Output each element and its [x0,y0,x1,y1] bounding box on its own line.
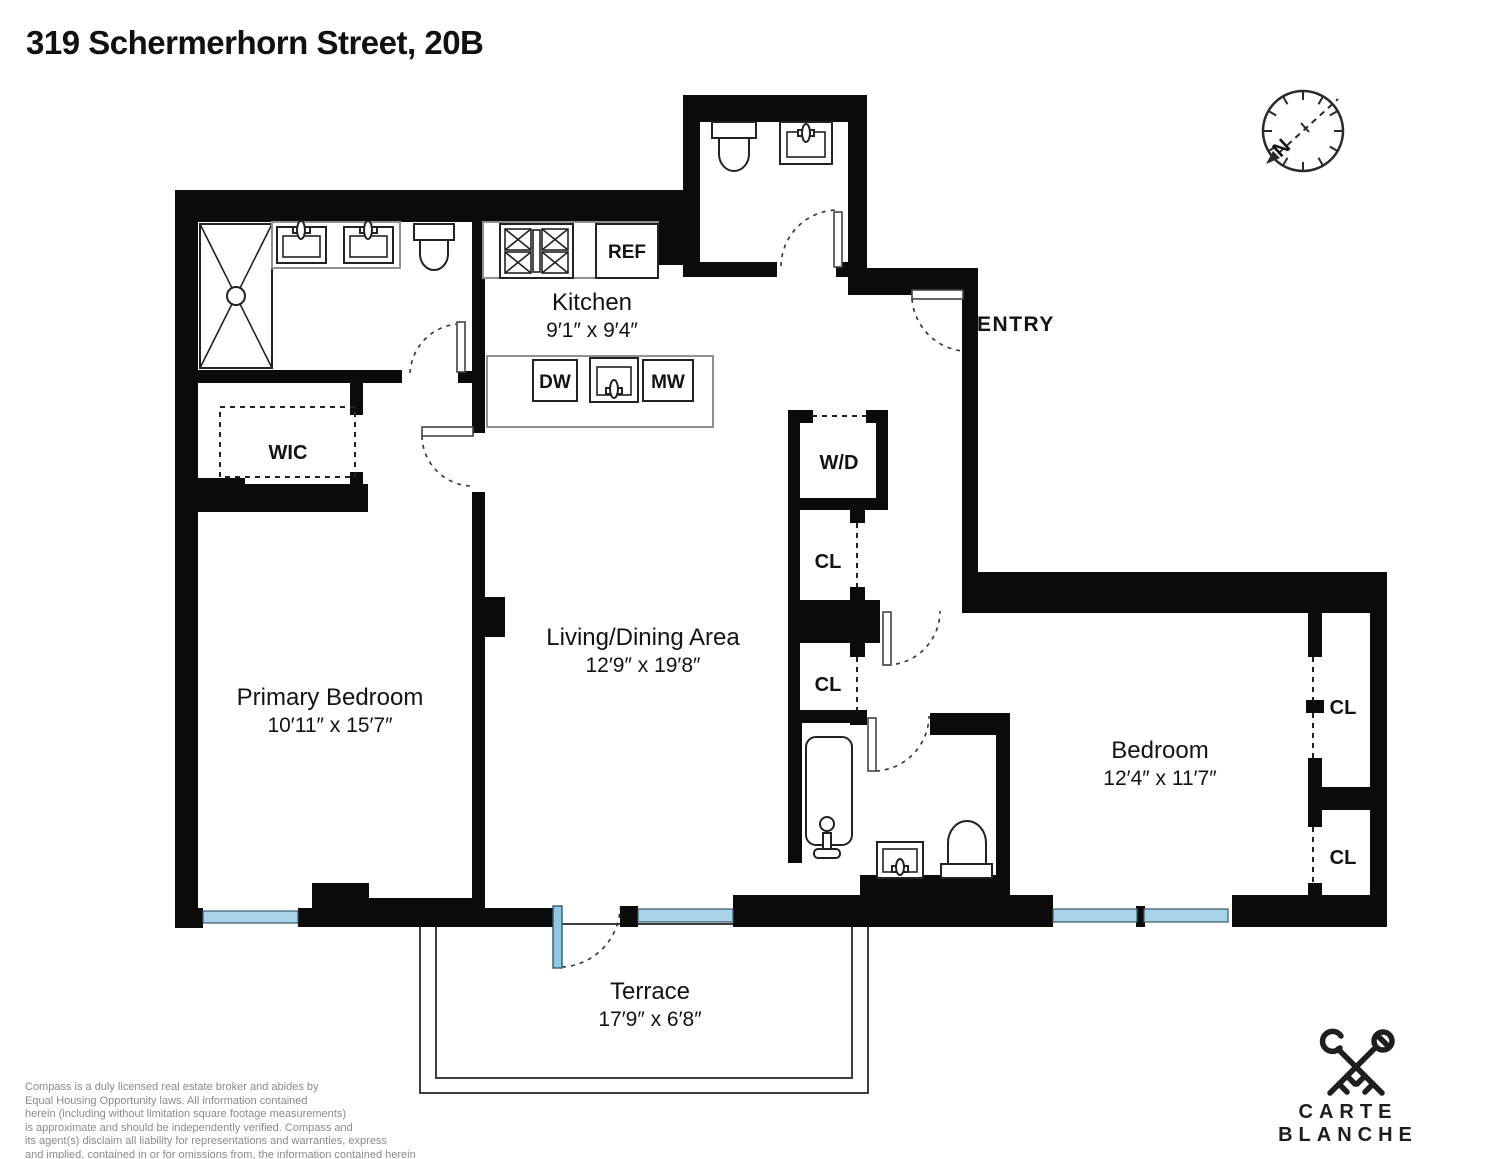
floorplan-drawing: REF DW MW [0,0,1500,1159]
refrigerator-label: REF [608,242,646,263]
bedroom-closet2-label: CL [1330,847,1357,869]
dishwasher-icon: DW [533,360,577,401]
bathroom1-fixtures [712,122,832,171]
disclaimer-line: Compass is a duly licensed real estate b… [25,1081,416,1095]
bedroom-dims: 12′4″ x 11′7″ [1103,767,1217,790]
kitchen-sink-icon [590,358,638,402]
bathroom2-toilet-icon [941,821,992,878]
bathroom2-sink-icon [877,842,923,878]
brand-name: CARTE BLANCHE [1223,1101,1473,1147]
primary-bathroom-door [457,322,465,372]
shower-icon [200,224,272,368]
disclaimer-line: Equal Housing Opportunity laws. All info… [25,1095,416,1109]
kitchen-dims: 9′1″ x 9′4″ [546,319,638,342]
primary-bedroom-door [422,427,473,436]
wic-label: WIC [269,442,308,464]
bathroom1-toilet-icon [712,122,756,171]
disclaimer-line: and implied, contained in or for omissio… [25,1149,416,1159]
terrace-label: Terrace [610,978,690,1005]
primary-bathroom-fixtures [200,221,454,368]
disclaimer-text: Compass is a duly licensed real estate b… [25,1081,416,1159]
disclaimer-line: its agent(s) disclaim all liability for … [25,1135,416,1149]
bedroom-label: Bedroom [1111,737,1208,764]
microwave-icon: MW [643,360,693,401]
floorplan-page: 319 Schermerhorn Street, 20B [0,0,1500,1159]
refrigerator-icon: REF [596,224,658,278]
living-label: Living/Dining Area [546,624,740,651]
washer-dryer-label: W/D [820,452,859,474]
bedroom-window-right [1144,909,1228,922]
bedroom-closet1-label: CL [1330,697,1357,719]
stove-icon [500,224,573,278]
vanity-sink-left-icon [277,221,326,263]
bathroom2-fixtures [806,737,992,878]
primary-bedroom-window [203,911,298,923]
microwave-label: MW [651,372,685,393]
hall-closet2-label: CL [815,674,842,696]
bathroom1-sink-icon [780,122,832,164]
disclaimer-line: herein (including without limitation squ… [25,1108,416,1122]
primary-bedroom-dims: 10′11″ x 15′7″ [267,714,393,737]
terrace-dims: 17′9″ x 6′8″ [598,1008,702,1031]
bathroom1-door [834,212,842,267]
vanity-sink-right-icon [344,221,393,263]
primary-bedroom-label: Primary Bedroom [237,684,424,711]
entry-door [912,290,963,299]
living-window [638,909,733,922]
disclaimer-line: is approximate and should be independent… [25,1122,416,1136]
compass-icon: N [1263,91,1343,171]
closet-doors [220,407,1313,883]
hallway-door [883,612,891,665]
terrace-door [553,906,562,968]
primary-toilet-icon [414,224,454,270]
bathroom2-door [868,718,876,771]
bedroom-window-left [1053,909,1137,922]
crossed-keys-icon [1323,1031,1392,1093]
bathtub-icon [806,737,852,858]
kitchen-label: Kitchen [552,289,632,316]
walls [175,95,1387,928]
living-dims: 12′9″ x 19′8″ [586,654,702,677]
hall-closet1-label: CL [815,551,842,573]
dishwasher-label: DW [539,372,571,393]
entry-label: ENTRY [977,313,1055,336]
